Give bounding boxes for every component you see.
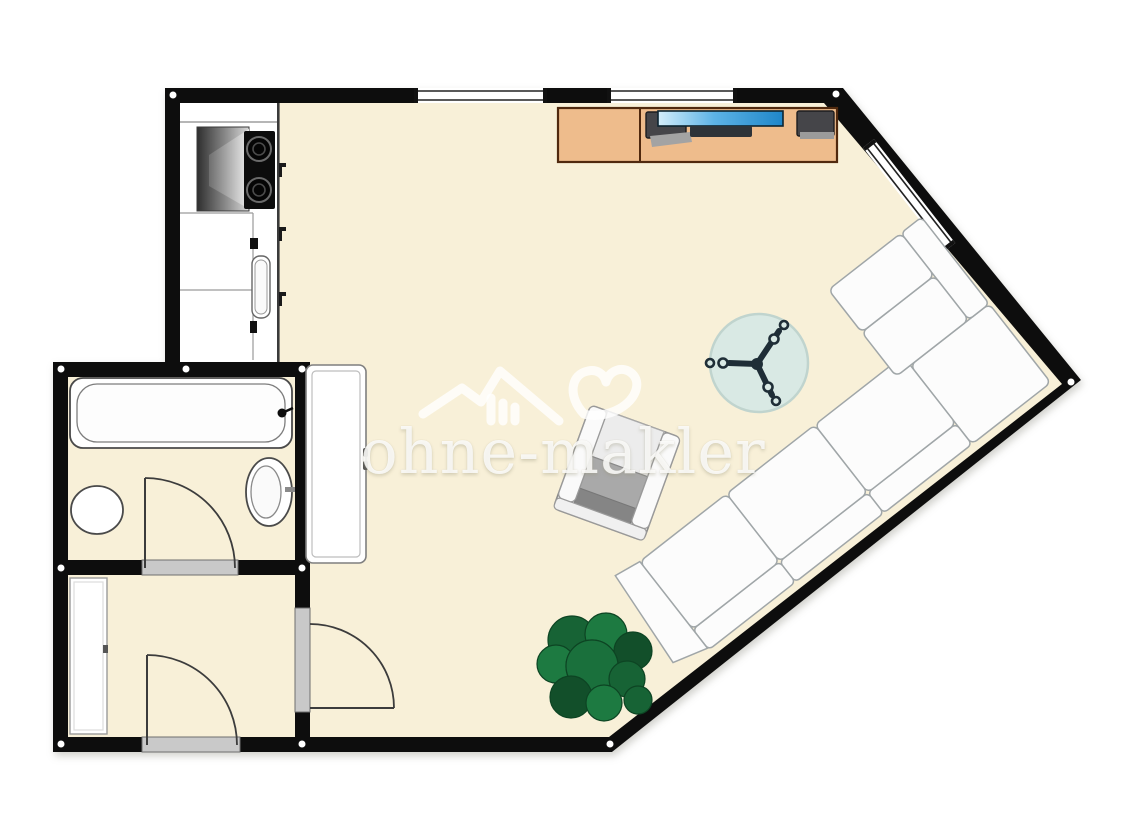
floorplan-page: ohne-makler — [0, 0, 1126, 830]
bathroom-door-sill — [142, 560, 238, 575]
desk — [558, 108, 837, 162]
living-room-door-sill — [295, 608, 310, 712]
living-room-wardrobe — [306, 365, 368, 563]
cooktop — [244, 131, 275, 209]
monitor-right — [797, 111, 834, 139]
entry-door-sill — [142, 737, 240, 752]
basin-faucet — [285, 487, 295, 492]
hall-closet — [70, 578, 108, 734]
hallway — [70, 578, 108, 734]
toilet — [71, 486, 123, 534]
top-wall-window-left — [414, 88, 547, 103]
top-wall-window-right — [607, 88, 737, 103]
floorplan-drawing — [0, 0, 1126, 830]
range-hood — [197, 127, 249, 211]
bathtub — [70, 378, 293, 448]
